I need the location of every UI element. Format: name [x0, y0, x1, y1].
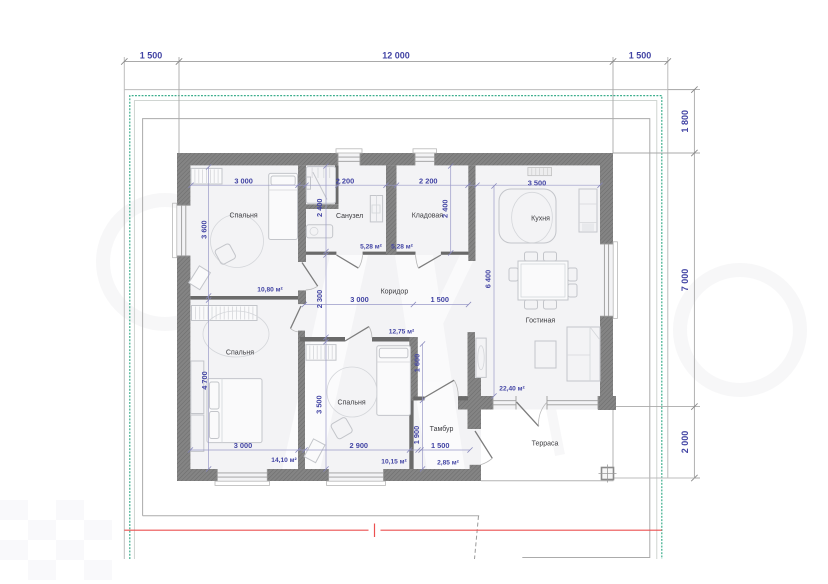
svg-text:2 900: 2 900 [350, 441, 369, 450]
svg-text:1 500: 1 500 [431, 441, 450, 450]
svg-text:Спальня: Спальня [338, 399, 366, 406]
svg-text:Спальня: Спальня [230, 213, 258, 220]
svg-text:6 400: 6 400 [484, 270, 493, 289]
svg-text:2 200: 2 200 [336, 177, 355, 186]
svg-text:3 500: 3 500 [528, 178, 547, 187]
svg-text:2 400: 2 400 [441, 199, 450, 218]
svg-text:1 500: 1 500 [140, 51, 163, 61]
svg-text:1 600: 1 600 [413, 354, 422, 373]
svg-text:10,80 м²: 10,80 м² [257, 287, 283, 294]
svg-text:Гостиная: Гостиная [526, 318, 556, 325]
svg-text:2 000: 2 000 [680, 431, 690, 454]
svg-text:3 600: 3 600 [200, 220, 209, 239]
svg-text:1 800: 1 800 [680, 110, 690, 133]
svg-text:12 000: 12 000 [382, 51, 410, 61]
svg-text:Кухня: Кухня [531, 215, 550, 222]
svg-text:5,28 м²: 5,28 м² [360, 243, 383, 250]
svg-text:1 500: 1 500 [430, 295, 449, 304]
svg-text:Коридор: Коридор [381, 289, 409, 296]
svg-text:1 900: 1 900 [412, 426, 421, 445]
svg-text:Санузел: Санузел [336, 213, 363, 220]
svg-text:Спальня: Спальня [226, 350, 254, 357]
svg-text:2 200: 2 200 [419, 177, 438, 186]
svg-text:Тамбур: Тамбур [430, 425, 454, 433]
svg-text:12,75 м²: 12,75 м² [389, 329, 415, 336]
svg-text:10,15 м²: 10,15 м² [381, 459, 407, 466]
svg-text:14,10 м²: 14,10 м² [271, 457, 297, 464]
svg-text:2 400: 2 400 [315, 198, 324, 217]
svg-text:3 000: 3 000 [234, 177, 253, 186]
svg-text:5,28 м²: 5,28 м² [391, 243, 414, 250]
svg-text:2 300: 2 300 [315, 290, 324, 309]
svg-text:22,40 м²: 22,40 м² [499, 386, 525, 393]
svg-text:Терраса: Терраса [532, 440, 559, 447]
svg-text:3 500: 3 500 [315, 395, 324, 414]
svg-text:1 500: 1 500 [629, 51, 652, 61]
svg-text:Кладовая: Кладовая [412, 213, 444, 220]
svg-text:3 000: 3 000 [350, 295, 369, 304]
svg-text:4 700: 4 700 [200, 371, 209, 390]
svg-text:3 000: 3 000 [234, 441, 253, 450]
svg-text:2,85 м²: 2,85 м² [437, 459, 460, 466]
svg-text:7 000: 7 000 [680, 269, 690, 292]
